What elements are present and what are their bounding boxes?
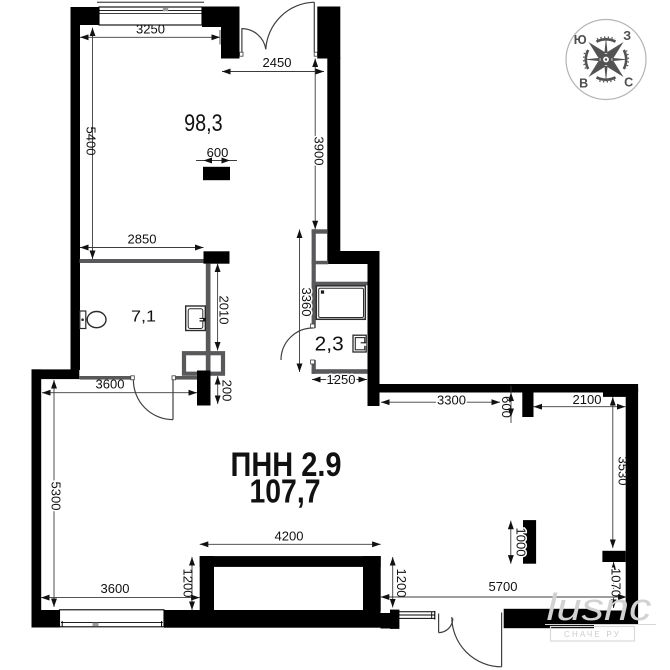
svg-text:Ю: Ю <box>574 33 587 47</box>
svg-text:98,3: 98,3 <box>184 110 223 137</box>
svg-text:2100: 2100 <box>573 392 602 407</box>
svg-text:СНАЧЕ РУ: СНАЧЕ РУ <box>564 630 621 639</box>
svg-text:5700: 5700 <box>489 579 518 594</box>
svg-text:В: В <box>579 77 588 91</box>
svg-text:7,1: 7,1 <box>131 309 156 326</box>
svg-text:З: З <box>623 29 631 43</box>
svg-text:1250: 1250 <box>327 372 356 387</box>
svg-text:600: 600 <box>499 396 514 418</box>
svg-text:3250: 3250 <box>136 22 165 37</box>
svg-text:1000: 1000 <box>513 528 528 557</box>
svg-text:200: 200 <box>220 380 235 402</box>
svg-text:2010: 2010 <box>217 296 232 325</box>
svg-text:3530: 3530 <box>616 457 631 486</box>
svg-text:1200: 1200 <box>394 569 409 598</box>
svg-text:5400: 5400 <box>84 127 99 156</box>
svg-text:2850: 2850 <box>128 232 157 247</box>
svg-text:5300: 5300 <box>49 482 64 511</box>
svg-text:2,3: 2,3 <box>315 333 344 356</box>
svg-text:600: 600 <box>207 145 229 160</box>
svg-text:3360: 3360 <box>299 288 314 317</box>
svg-text:1200: 1200 <box>181 569 196 598</box>
svg-text:3600: 3600 <box>101 581 130 596</box>
svg-text:С: С <box>624 76 633 90</box>
svg-text:4200: 4200 <box>275 528 304 543</box>
svg-text:107,7: 107,7 <box>250 473 321 510</box>
svg-text:2450: 2450 <box>263 55 292 70</box>
svg-text:3900: 3900 <box>312 137 327 166</box>
svg-text:3600: 3600 <box>96 377 125 392</box>
svg-text:lusnc: lusnc <box>547 587 652 629</box>
svg-text:3300: 3300 <box>437 393 466 408</box>
